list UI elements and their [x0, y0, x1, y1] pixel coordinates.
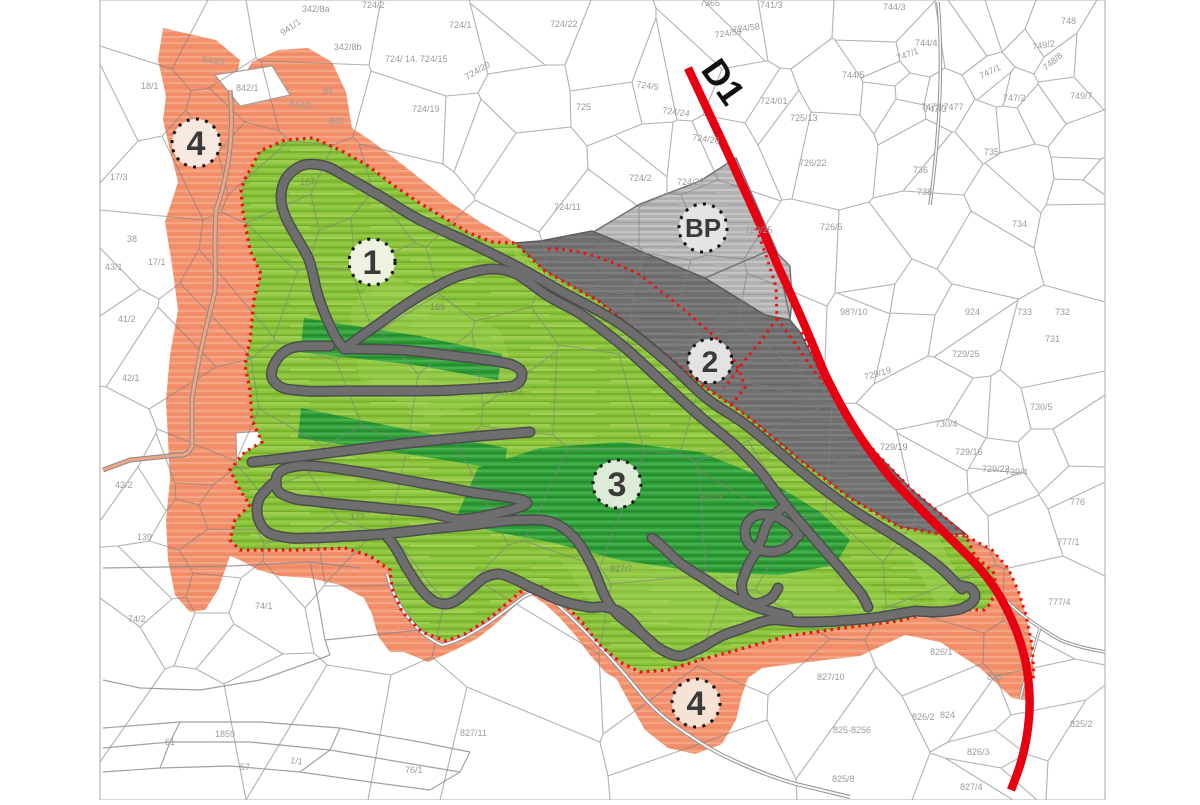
svg-text:724/ 14. 724/15: 724/ 14. 724/15 — [385, 54, 448, 64]
svg-text:827/10: 827/10 — [817, 672, 845, 682]
svg-text:744/5: 744/5 — [842, 70, 865, 80]
svg-text:139: 139 — [137, 532, 152, 542]
svg-text:4: 4 — [187, 125, 206, 163]
svg-text:924: 924 — [965, 307, 980, 317]
svg-text:730/4: 730/4 — [935, 419, 958, 429]
svg-text:726/22: 726/22 — [799, 158, 827, 168]
svg-text:826/1: 826/1 — [930, 647, 953, 657]
svg-text:57: 57 — [240, 762, 250, 772]
svg-text:729/16: 729/16 — [955, 447, 983, 457]
svg-text:738: 738 — [917, 187, 932, 197]
svg-text:2: 2 — [702, 346, 719, 379]
svg-text:169: 169 — [430, 302, 445, 312]
svg-text:1/1: 1/1 — [290, 755, 304, 767]
svg-text:825-8256: 825-8256 — [833, 725, 871, 735]
svg-text:729/19: 729/19 — [880, 442, 908, 452]
svg-text:725: 725 — [576, 102, 591, 112]
svg-text:741/3: 741/3 — [760, 0, 783, 10]
svg-text:777/1: 777/1 — [1057, 537, 1080, 547]
svg-text:1: 1 — [363, 244, 382, 282]
svg-text:827/7: 827/7 — [610, 564, 633, 574]
svg-text:167: 167 — [300, 177, 315, 187]
svg-text:41/2: 41/2 — [118, 314, 136, 324]
svg-text:744/4: 744/4 — [915, 38, 938, 48]
svg-text:724/2: 724/2 — [362, 0, 385, 10]
svg-text:842: 842 — [329, 116, 344, 126]
svg-text:724/22: 724/22 — [550, 19, 578, 29]
svg-text:726/5: 726/5 — [820, 222, 843, 232]
svg-text:38: 38 — [127, 234, 137, 244]
svg-text:4: 4 — [687, 685, 706, 723]
svg-text:827/4: 827/4 — [960, 782, 983, 792]
svg-text:735: 735 — [984, 147, 999, 157]
svg-text:734: 734 — [1012, 219, 1027, 229]
svg-text:724/01: 724/01 — [760, 96, 788, 106]
svg-text:724/11: 724/11 — [554, 202, 581, 212]
svg-text:824: 824 — [940, 710, 955, 720]
svg-text:17/1: 17/1 — [148, 257, 166, 267]
svg-text:749/7: 749/7 — [1070, 91, 1093, 101]
svg-text:76/1: 76/1 — [405, 765, 423, 775]
svg-text:724/19: 724/19 — [412, 104, 440, 114]
svg-text:744/3: 744/3 — [883, 2, 906, 12]
svg-text:42/2: 42/2 — [115, 480, 133, 490]
svg-text:342/8b: 342/8b — [334, 42, 362, 52]
svg-text:1859: 1859 — [215, 729, 235, 739]
svg-text:43/1: 43/1 — [105, 262, 123, 272]
svg-text:3: 3 — [608, 466, 627, 504]
svg-text:739/4: 739/4 — [1005, 467, 1028, 477]
svg-text:7365: 7365 — [700, 0, 720, 8]
svg-text:42/1: 42/1 — [122, 373, 140, 383]
svg-text:725/13: 725/13 — [790, 113, 818, 123]
svg-text:825/8: 825/8 — [832, 774, 855, 784]
svg-text:736: 736 — [913, 165, 928, 175]
svg-text:826/3: 826/3 — [967, 747, 990, 757]
svg-text:61: 61 — [165, 737, 175, 747]
svg-text:733: 733 — [1017, 307, 1032, 317]
svg-text:748: 748 — [1061, 16, 1076, 26]
svg-text:825/2: 825/2 — [1070, 719, 1093, 729]
svg-text:747/3: 747/3 — [924, 104, 947, 114]
svg-text:724/2: 724/2 — [629, 173, 652, 183]
svg-text:842/1: 842/1 — [236, 83, 259, 93]
svg-text:729/25: 729/25 — [952, 349, 980, 359]
svg-text:827/11: 827/11 — [460, 728, 487, 738]
svg-text:724/1: 724/1 — [449, 20, 472, 30]
svg-text:731: 731 — [1045, 334, 1060, 344]
svg-text:BP: BP — [685, 213, 721, 243]
svg-text:84: 84 — [323, 86, 333, 96]
svg-text:172/2: 172/2 — [500, 387, 523, 397]
svg-text:732: 732 — [1055, 307, 1070, 317]
svg-text:747/2: 747/2 — [1003, 93, 1026, 103]
svg-text:18/1: 18/1 — [141, 81, 159, 91]
svg-text:777/4: 777/4 — [1048, 597, 1071, 607]
svg-text:342/8a: 342/8a — [302, 4, 330, 14]
svg-text:74/2: 74/2 — [128, 614, 146, 624]
svg-text:177: 177 — [350, 512, 365, 522]
svg-text:730/5: 730/5 — [1030, 402, 1053, 412]
svg-text:776: 776 — [1070, 497, 1085, 507]
svg-text:17/3: 17/3 — [110, 172, 128, 182]
svg-text:823: 823 — [987, 672, 1002, 682]
svg-text:827/3: 827/3 — [700, 492, 723, 502]
svg-text:724/27: 724/27 — [677, 177, 705, 187]
svg-text:826/2: 826/2 — [912, 712, 935, 722]
svg-text:729/25: 729/25 — [745, 225, 773, 235]
svg-text:98?/10: 98?/10 — [840, 307, 868, 317]
svg-text:74/1: 74/1 — [255, 601, 273, 611]
